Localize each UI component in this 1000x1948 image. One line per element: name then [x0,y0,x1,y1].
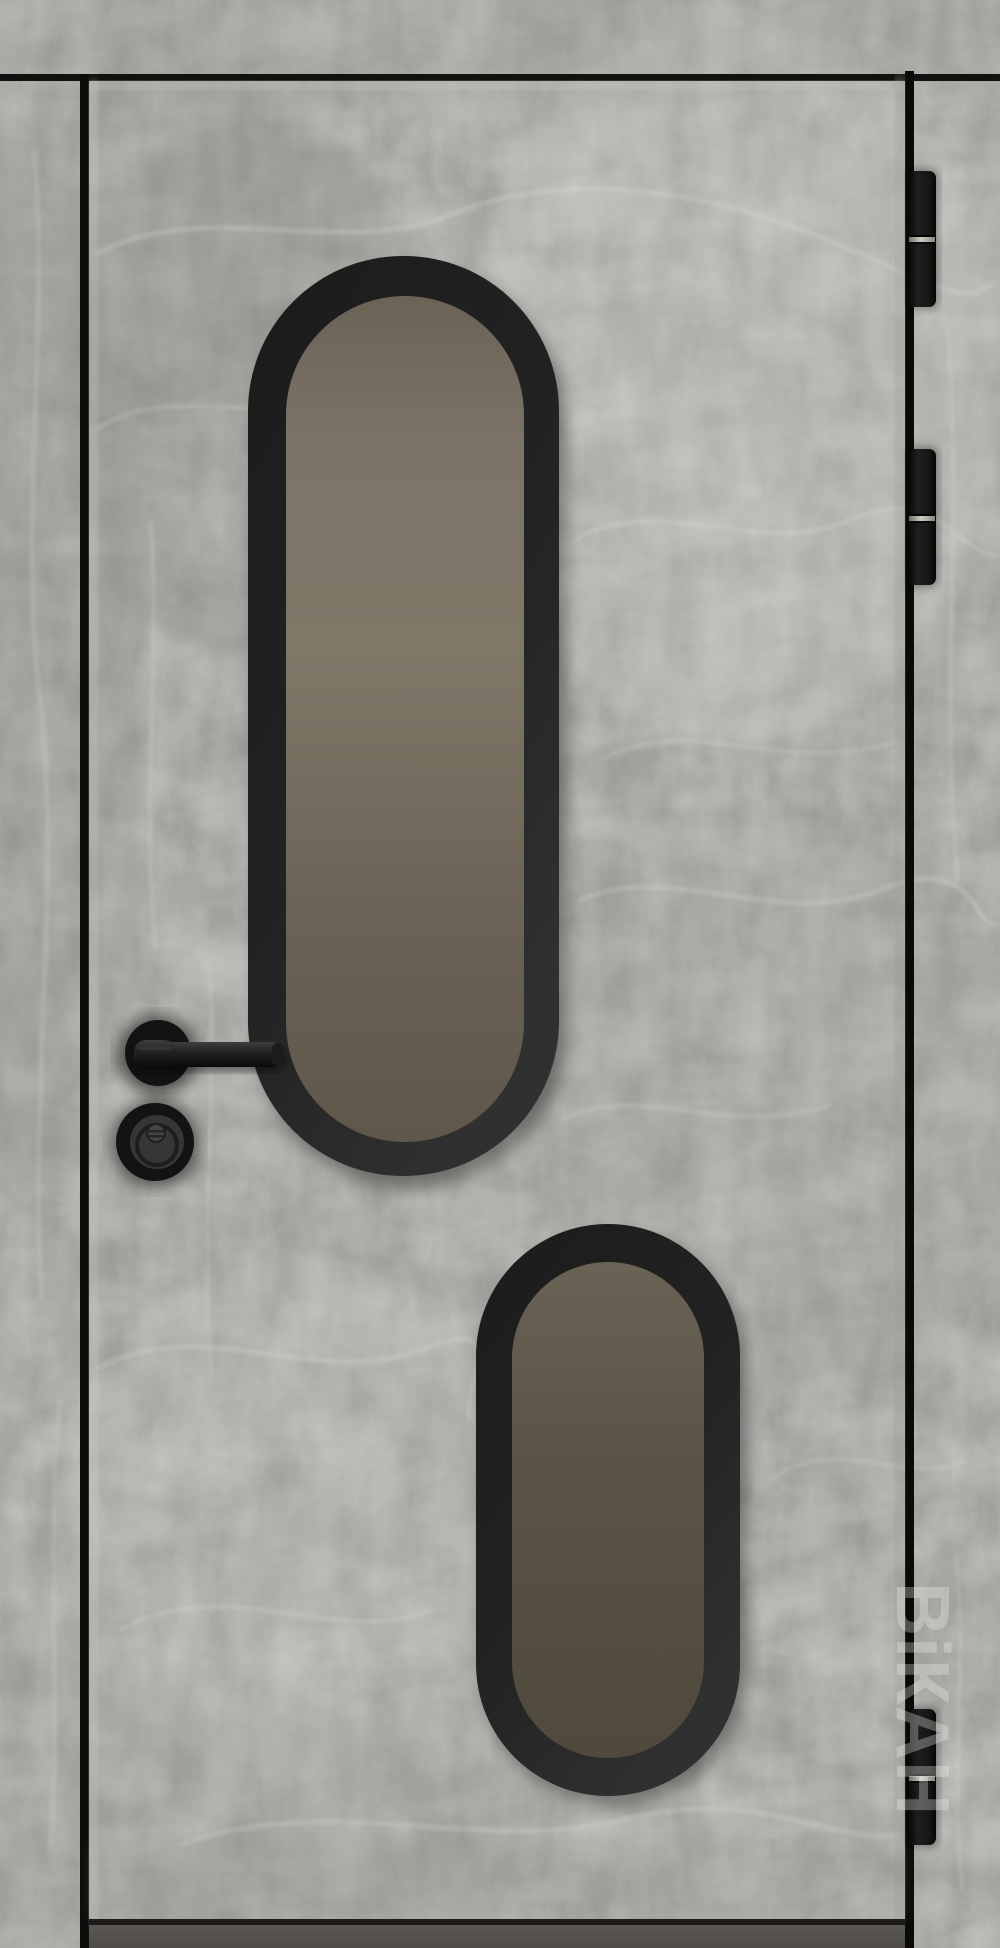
svg-text:ВіКАН: ВіКАН [881,1582,965,1816]
